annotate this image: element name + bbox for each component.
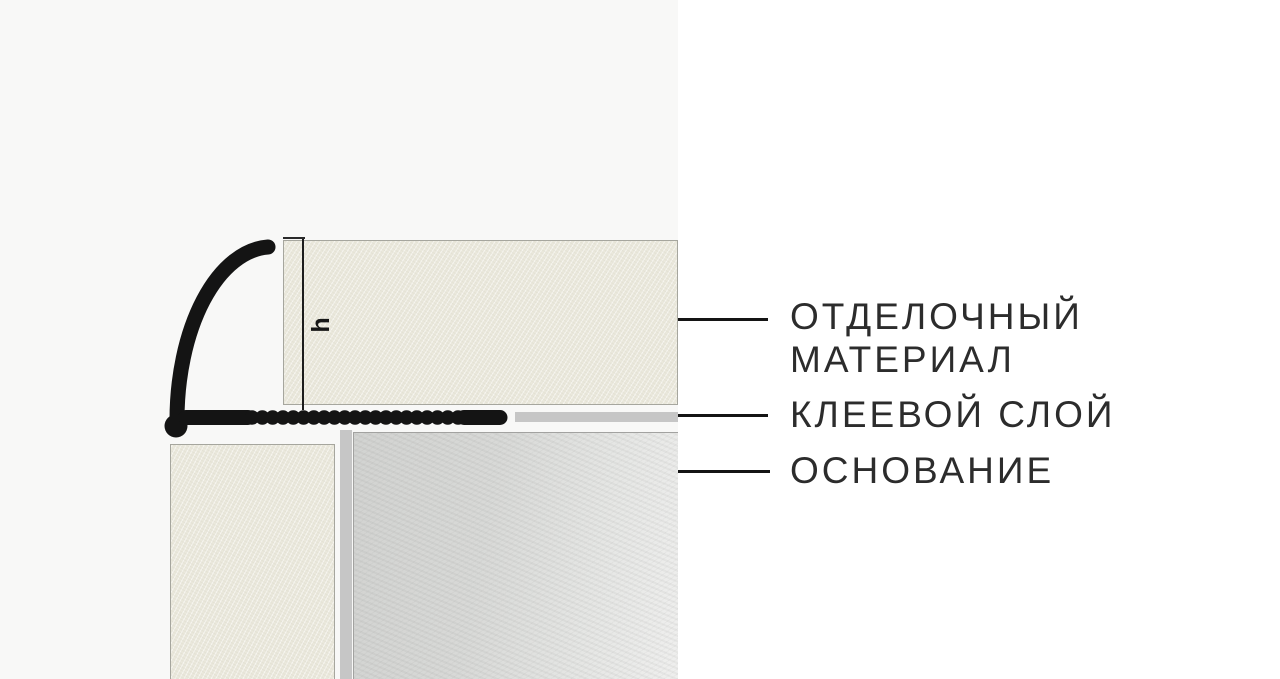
- label-finishing-material-line2: МАТЕРИАЛ: [790, 338, 1083, 381]
- pointer-line-substrate: [678, 470, 770, 473]
- label-finishing-material-line1: ОТДЕЛОЧНЫЙ: [790, 295, 1083, 338]
- label-adhesive-layer: КЛЕЕВОЙ СЛОЙ: [790, 393, 1115, 436]
- pointer-line-adhesive-layer: [678, 414, 768, 417]
- diagram-canvas: h ОТДЕЛОЧНЫЙ МАТЕРИАЛ КЛЕЕВОЙ СЛОЙ ОСНОВ…: [0, 0, 1280, 679]
- label-substrate: ОСНОВАНИЕ: [790, 449, 1054, 492]
- label-finishing-material: ОТДЕЛОЧНЫЙ МАТЕРИАЛ: [790, 295, 1083, 381]
- trim-curved-arc: [177, 247, 268, 420]
- tile-trim-profile: [0, 0, 678, 679]
- diagram-panel: h: [0, 0, 678, 679]
- pointer-line-finishing-material: [678, 318, 768, 321]
